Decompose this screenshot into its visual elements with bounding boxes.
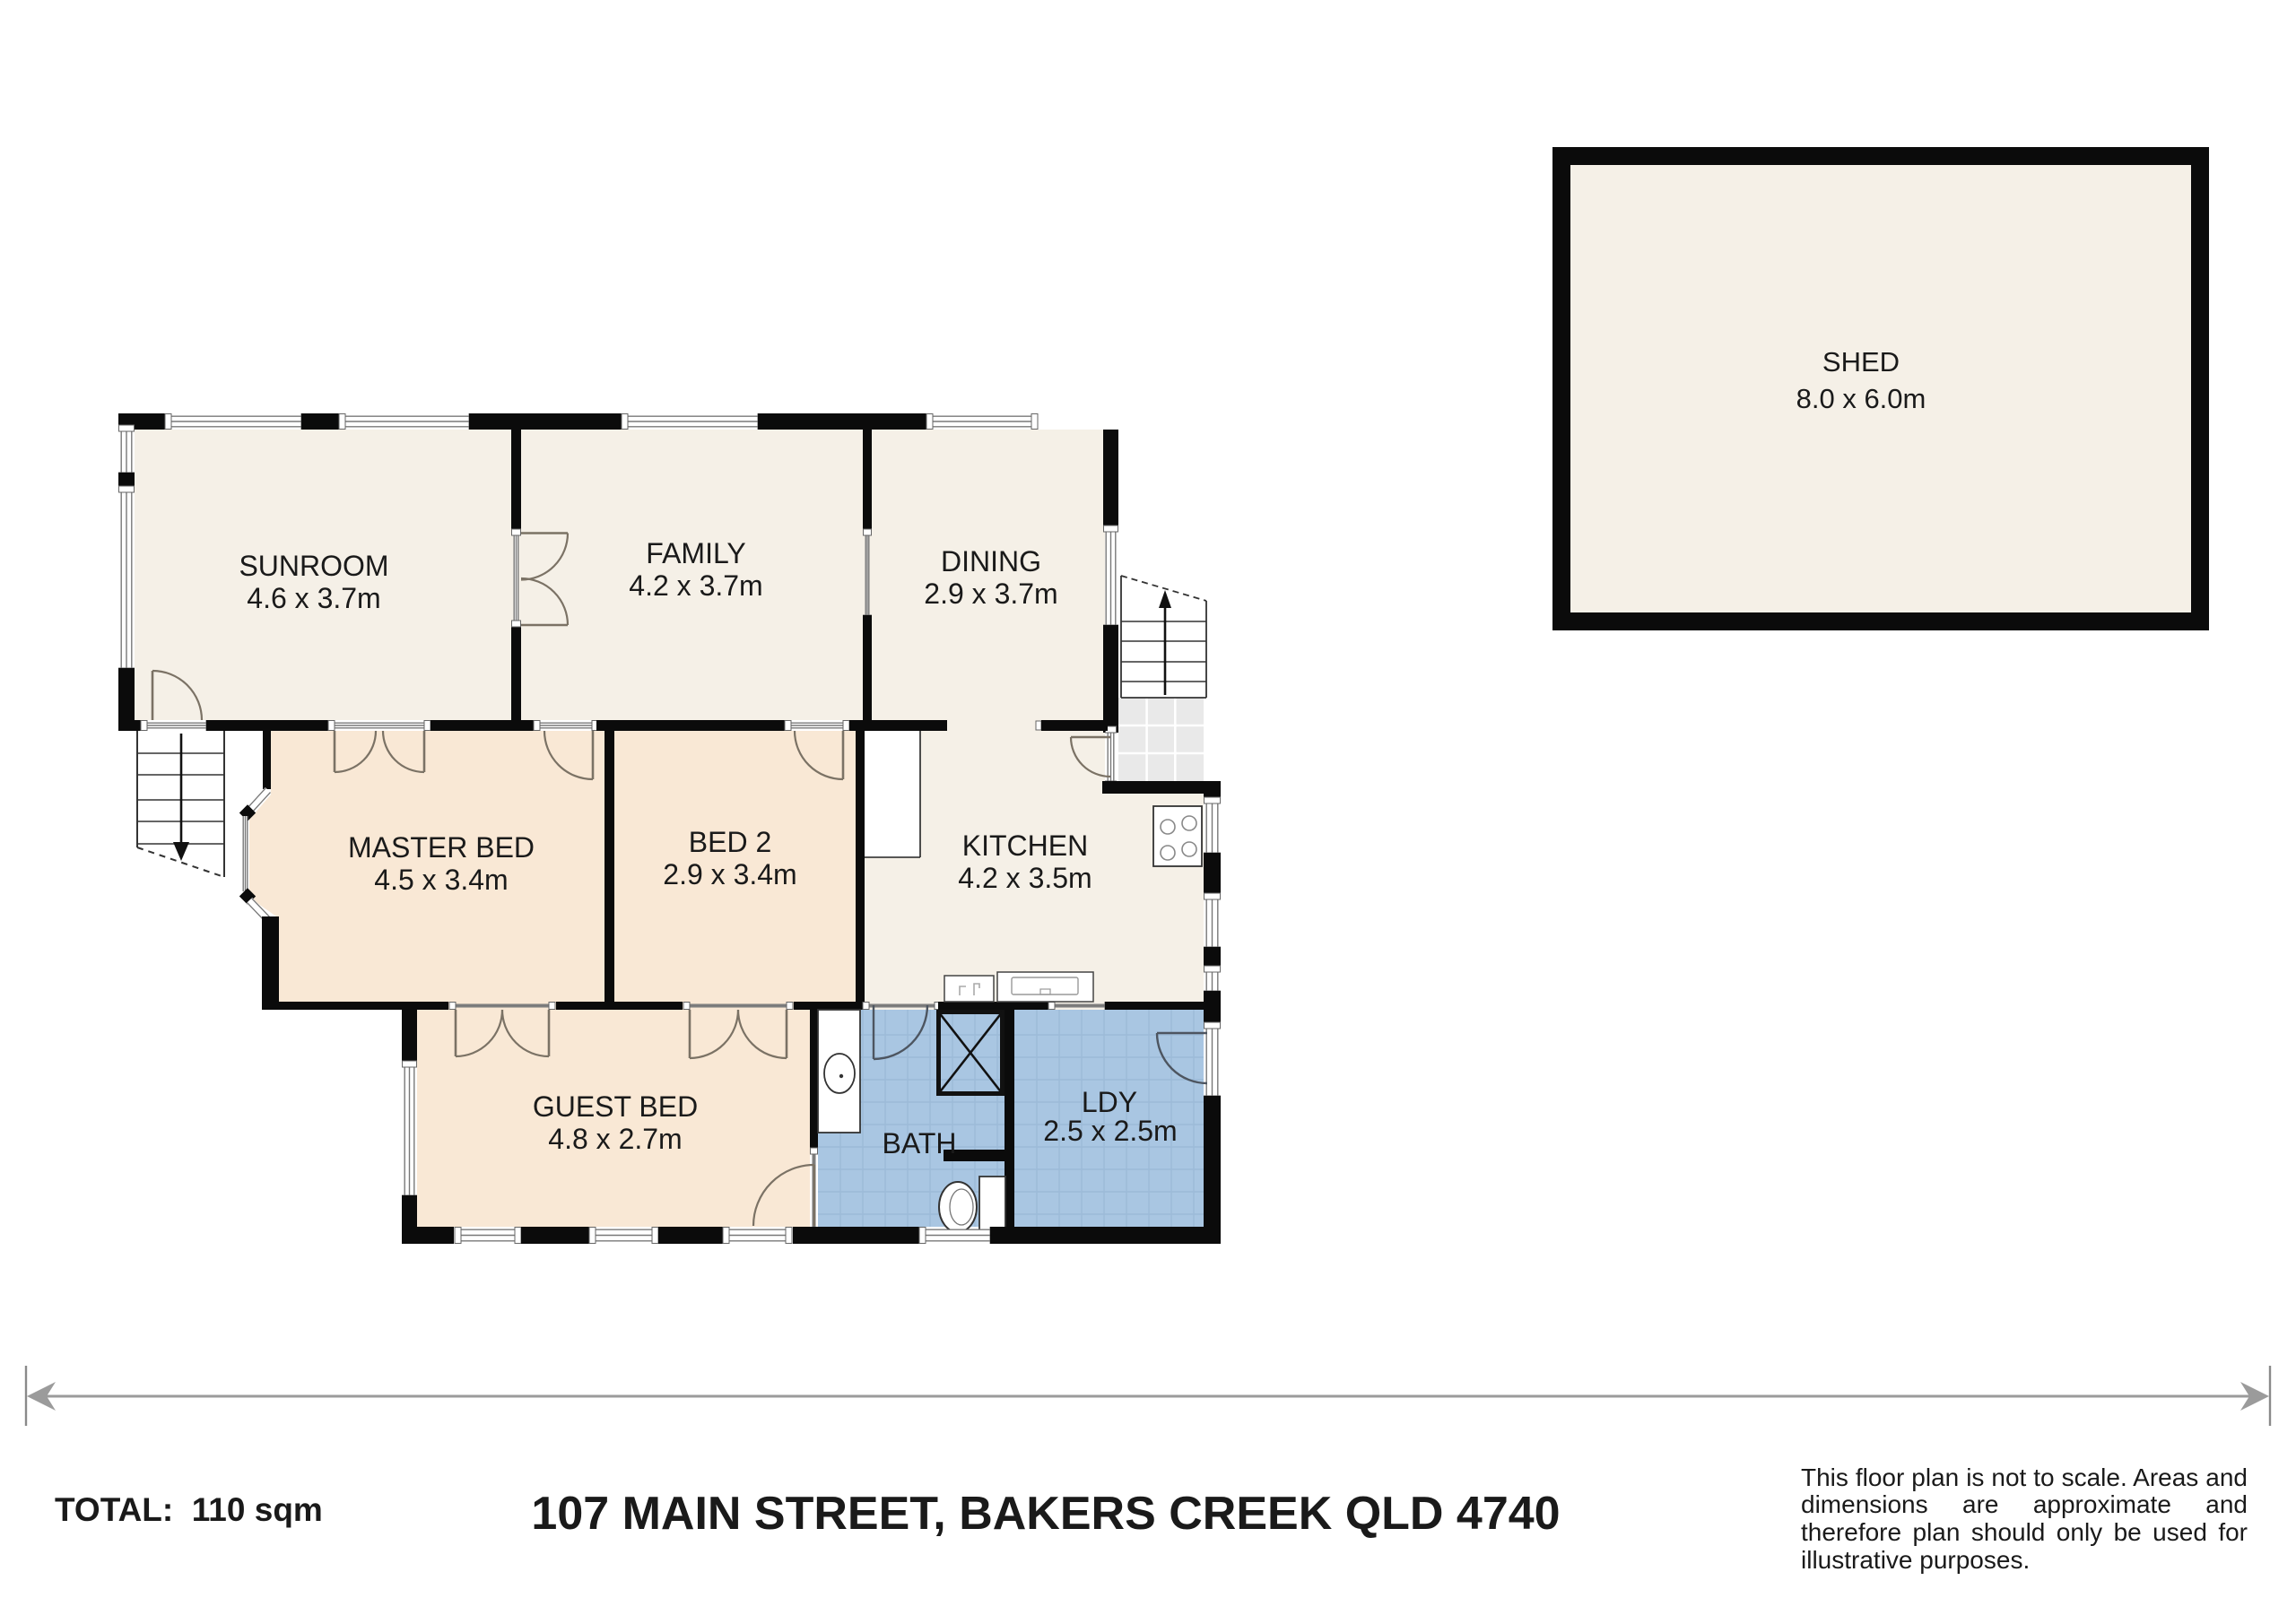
svg-text:DINING: DINING bbox=[941, 545, 1041, 578]
svg-text:TOTAL: 110 sqm: TOTAL: 110 sqm bbox=[55, 1491, 323, 1528]
svg-text:SHED: SHED bbox=[1822, 346, 1900, 378]
svg-text:LDY: LDY bbox=[1082, 1086, 1137, 1118]
svg-text:SUNROOM: SUNROOM bbox=[239, 550, 388, 582]
svg-text:KITCHEN: KITCHEN bbox=[962, 829, 1088, 862]
svg-text:2.9 x 3.4m: 2.9 x 3.4m bbox=[663, 858, 796, 890]
svg-text:FAMILY: FAMILY bbox=[646, 537, 745, 569]
svg-text:4.8 x 2.7m: 4.8 x 2.7m bbox=[548, 1123, 682, 1155]
svg-text:BED 2: BED 2 bbox=[689, 826, 771, 858]
svg-text:4.5 x 3.4m: 4.5 x 3.4m bbox=[374, 864, 508, 896]
svg-text:GUEST BED: GUEST BED bbox=[533, 1090, 698, 1123]
svg-text:2.5 x 2.5m: 2.5 x 2.5m bbox=[1043, 1115, 1177, 1147]
svg-text:4.2 x 3.5m: 4.2 x 3.5m bbox=[958, 862, 1091, 894]
svg-text:BATH: BATH bbox=[883, 1127, 957, 1159]
svg-text:107 MAIN STREET, BAKERS CREEK: 107 MAIN STREET, BAKERS CREEK QLD 4740 bbox=[531, 1488, 1560, 1540]
svg-text:2.9 x 3.7m: 2.9 x 3.7m bbox=[924, 578, 1057, 610]
svg-text:MASTER BED: MASTER BED bbox=[348, 831, 535, 864]
svg-text:8.0 x 6.0m: 8.0 x 6.0m bbox=[1796, 383, 1926, 414]
svg-text:4.6 x 3.7m: 4.6 x 3.7m bbox=[247, 582, 380, 614]
svg-text:4.2 x 3.7m: 4.2 x 3.7m bbox=[629, 569, 762, 602]
